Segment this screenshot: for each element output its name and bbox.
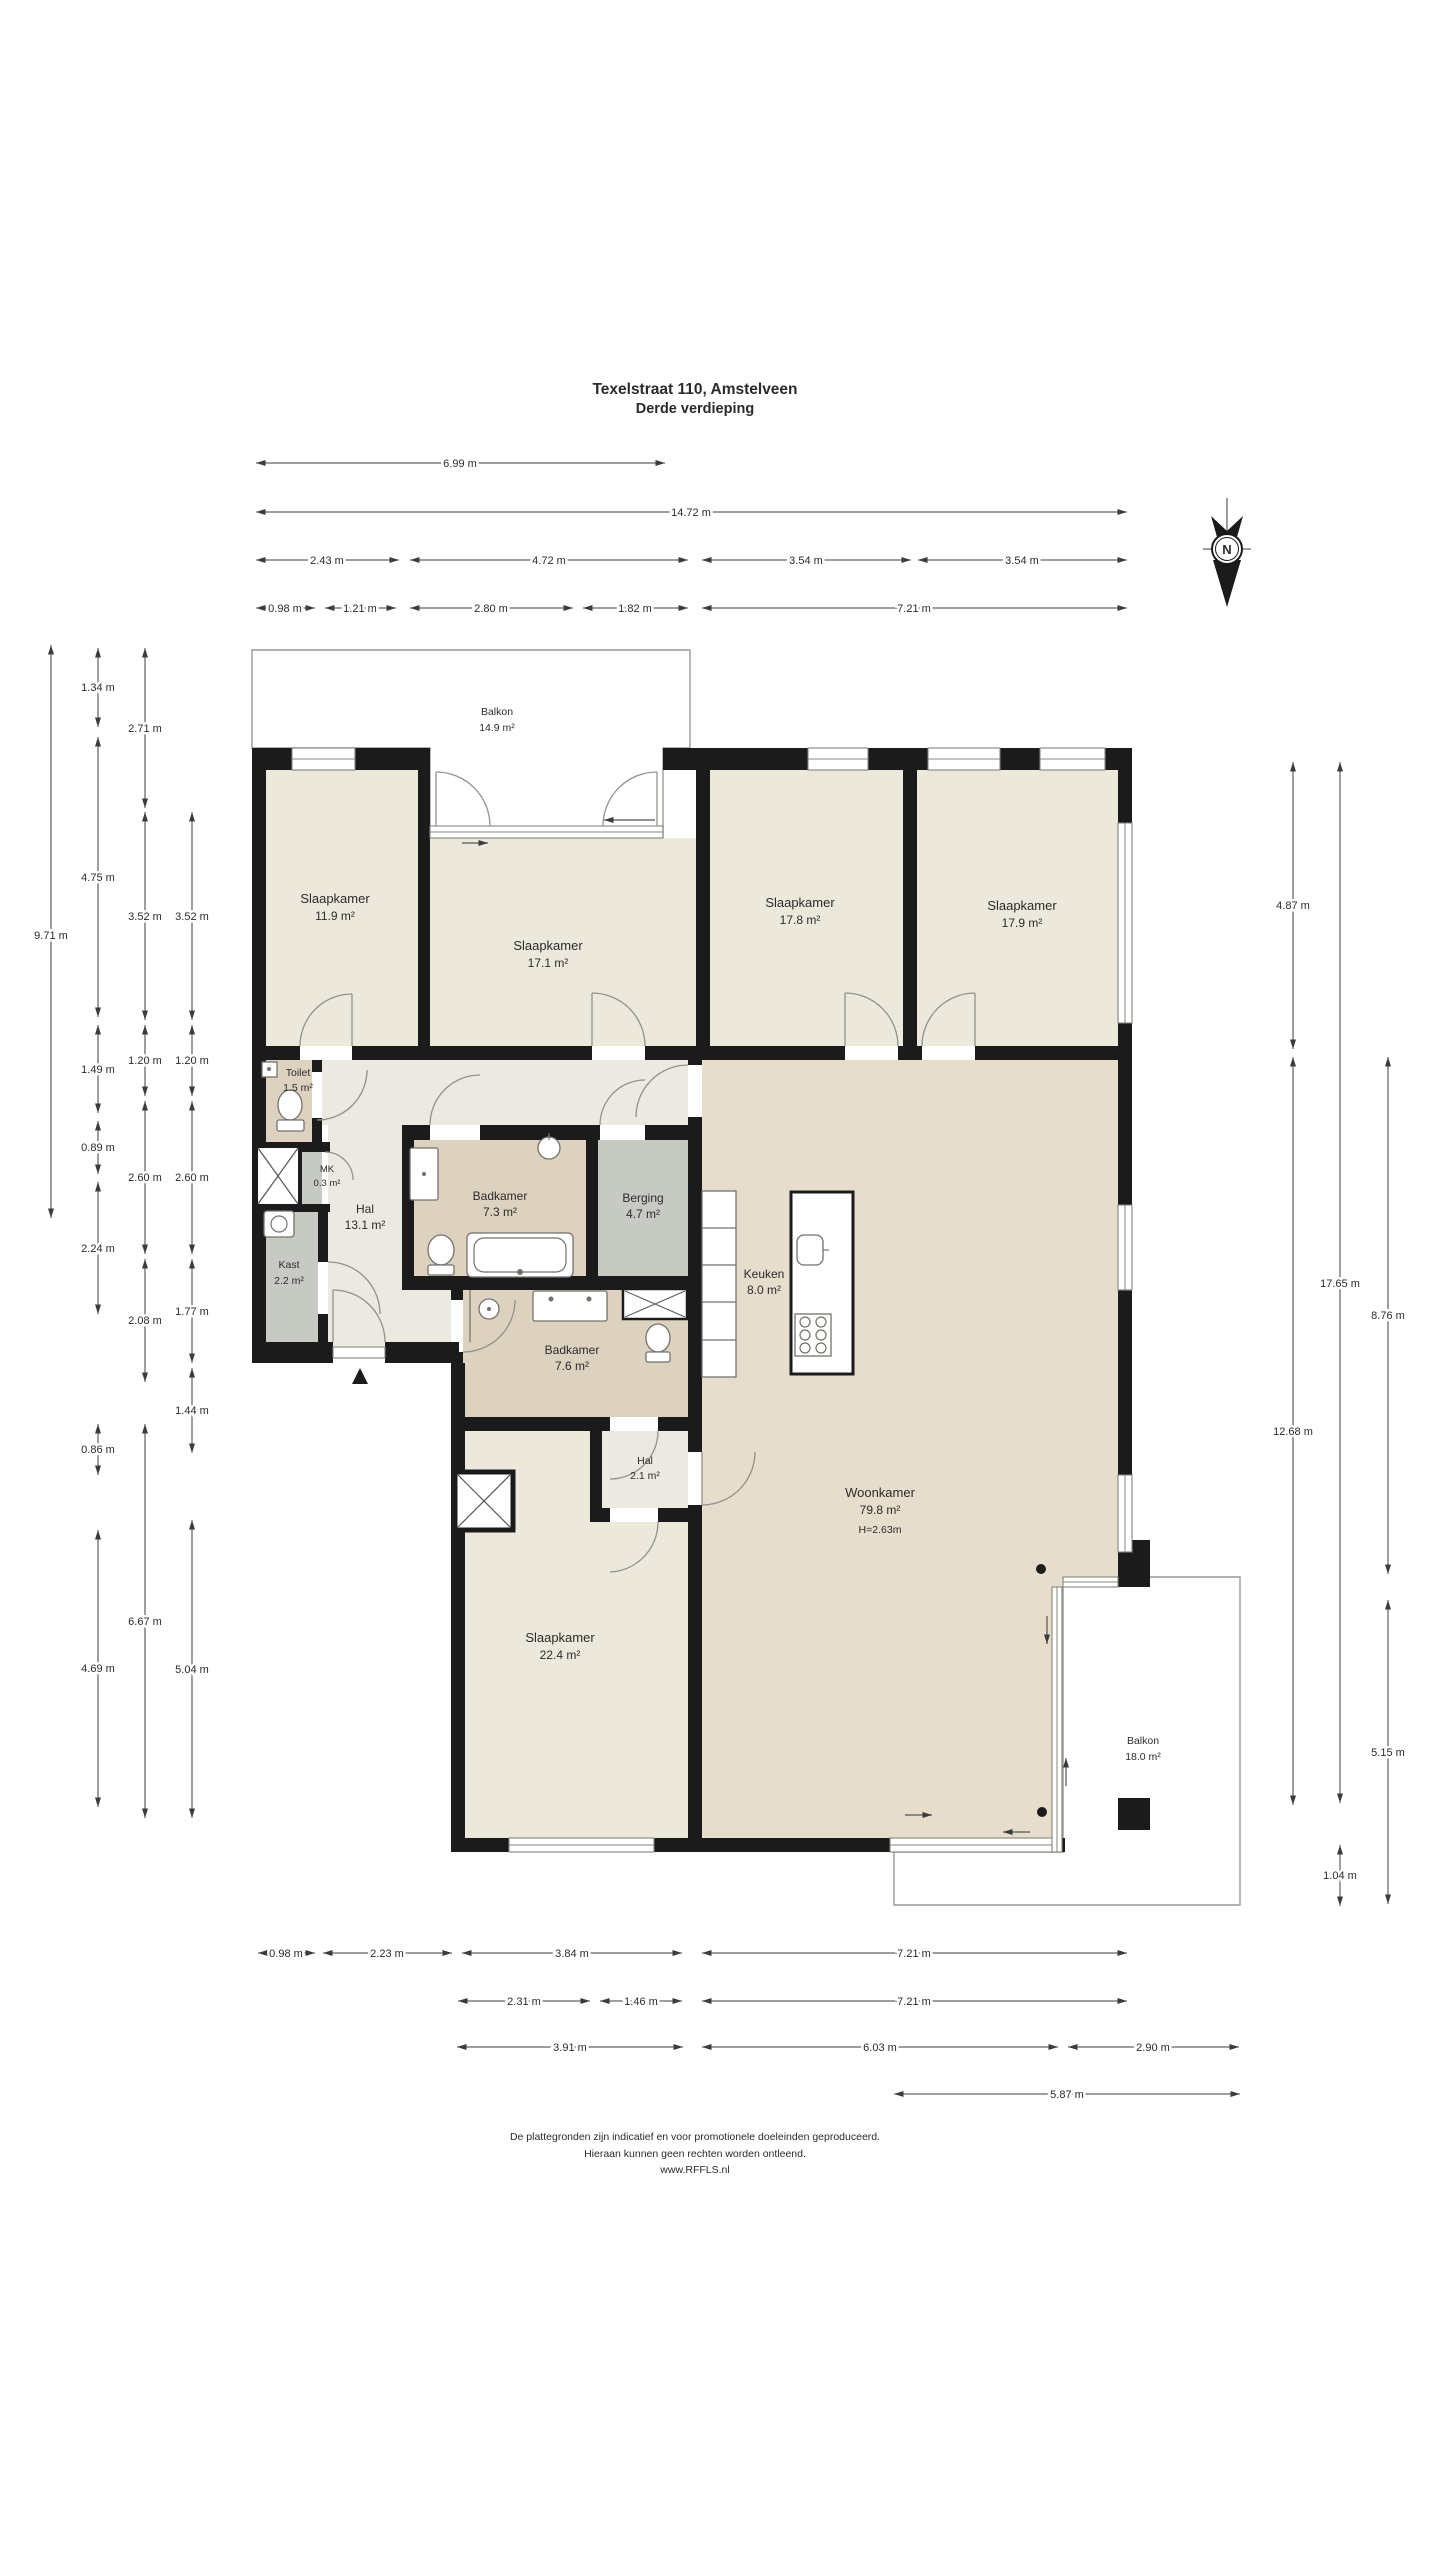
dim-label: 4.72 m bbox=[532, 555, 566, 567]
dimensions-bottom: 0.98 m 2.23 m 3.84 m 7.21 m 2.31 m 1.46 … bbox=[258, 1948, 1240, 2101]
title-floor: Derde verdieping bbox=[636, 401, 754, 417]
svg-text:Badkamer: Badkamer bbox=[473, 1189, 528, 1203]
dim-label: 1.49 m bbox=[81, 1064, 115, 1076]
dim-label: 9.71 m bbox=[34, 930, 68, 942]
dim-label: 1.20 m bbox=[175, 1055, 209, 1067]
svg-text:2.1 m²: 2.1 m² bbox=[630, 1470, 660, 1482]
svg-text:8.0 m²: 8.0 m² bbox=[747, 1283, 781, 1297]
page-title: Texelstraat 110, Amstelveen Derde verdie… bbox=[592, 381, 797, 417]
dimensions-left: 9.71 m 1.34 m 4.75 m 1.49 m 0.89 m 2.24 … bbox=[34, 645, 209, 1818]
dim-label: 1.77 m bbox=[175, 1306, 209, 1318]
dim-label: 7.21 m bbox=[897, 603, 931, 615]
svg-text:2.2 m²: 2.2 m² bbox=[274, 1275, 304, 1287]
title-address: Texelstraat 110, Amstelveen bbox=[592, 381, 797, 398]
svg-text:Keuken: Keuken bbox=[744, 1267, 785, 1281]
room-label-balkon-bottom: Balkon 18.0 m² bbox=[1125, 1735, 1161, 1763]
dim-label: 3.54 m bbox=[1005, 555, 1039, 567]
svg-text:Slaapkamer: Slaapkamer bbox=[513, 938, 583, 953]
svg-text:18.0 m²: 18.0 m² bbox=[1125, 1751, 1161, 1763]
dim-label: 2.43 m bbox=[310, 555, 344, 567]
floorplan: Balkon 14.9 m² Slaapkamer 11.9 m² Slaapk… bbox=[252, 650, 1240, 1905]
dim-label: 12.68 m bbox=[1273, 1426, 1313, 1438]
dim-label: 7.21 m bbox=[897, 1996, 931, 2008]
compass-north-label: N bbox=[1222, 542, 1231, 557]
svg-text:Slaapkamer: Slaapkamer bbox=[300, 891, 370, 906]
svg-text:17.9 m²: 17.9 m² bbox=[1002, 916, 1043, 930]
dim-label: 2.60 m bbox=[128, 1172, 162, 1184]
dim-label: 1.04 m bbox=[1323, 1870, 1357, 1882]
shaft-icon bbox=[455, 1472, 513, 1530]
dim-label: 7.21 m bbox=[897, 1948, 931, 1960]
dim-label: 2.60 m bbox=[175, 1172, 209, 1184]
dim-label: 3.54 m bbox=[789, 555, 823, 567]
svg-text:17.1 m²: 17.1 m² bbox=[528, 956, 569, 970]
room-label-balkon-top: Balkon 14.9 m² bbox=[479, 706, 515, 734]
dim-label: 4.75 m bbox=[81, 872, 115, 884]
sink-icon bbox=[797, 1235, 823, 1265]
dim-label: 1.34 m bbox=[81, 682, 115, 694]
svg-text:79.8 m²: 79.8 m² bbox=[860, 1503, 901, 1517]
dim-label: 3.91 m bbox=[553, 2042, 587, 2054]
dim-label: 2.31 m bbox=[507, 1996, 541, 2008]
floorplan-canvas: Texelstraat 110, Amstelveen Derde verdie… bbox=[0, 0, 1440, 2560]
dim-label: 3.52 m bbox=[175, 911, 209, 923]
dim-label: 4.87 m bbox=[1276, 900, 1310, 912]
svg-text:H=2.63m: H=2.63m bbox=[859, 1524, 902, 1536]
svg-text:Slaapkamer: Slaapkamer bbox=[987, 898, 1057, 913]
dim-label: 0.98 m bbox=[268, 603, 302, 615]
footer-line-2: Hieraan kunnen geen rechten worden ontle… bbox=[584, 2148, 806, 2160]
dim-label: 5.87 m bbox=[1050, 2089, 1084, 2101]
svg-text:17.8 m²: 17.8 m² bbox=[780, 913, 821, 927]
dim-label: 14.72 m bbox=[671, 507, 711, 519]
dim-label: 2.80 m bbox=[474, 603, 508, 615]
elevator-shaft-icon bbox=[256, 1146, 300, 1206]
svg-text:Berging: Berging bbox=[622, 1191, 663, 1205]
dim-label: 1.82 m bbox=[618, 603, 652, 615]
svg-text:Hal: Hal bbox=[637, 1455, 653, 1467]
dim-label: 4.69 m bbox=[81, 1663, 115, 1675]
footer-line-1: De plattegronden zijn indicatief en voor… bbox=[510, 2131, 880, 2143]
dim-label: 2.90 m bbox=[1136, 2042, 1170, 2054]
svg-text:11.9 m²: 11.9 m² bbox=[315, 909, 355, 923]
dim-label: 1.46 m bbox=[624, 1996, 658, 2008]
svg-text:Balkon: Balkon bbox=[481, 706, 513, 718]
dimensions-top: 6.99 m 14.72 m 2.43 m 4.72 m 3.54 m 3.54… bbox=[256, 458, 1127, 615]
boiler-icon bbox=[264, 1211, 294, 1237]
dim-label: 0.86 m bbox=[81, 1444, 115, 1456]
footer-line-3: www.RFFLS.nl bbox=[659, 2164, 729, 2176]
footer-disclaimer: De plattegronden zijn indicatief en voor… bbox=[510, 2131, 880, 2176]
compass-icon: N bbox=[1203, 498, 1251, 607]
svg-text:22.4 m²: 22.4 m² bbox=[540, 1648, 581, 1662]
svg-text:Kast: Kast bbox=[278, 1259, 299, 1271]
svg-text:4.7 m²: 4.7 m² bbox=[626, 1207, 660, 1221]
svg-text:7.3 m²: 7.3 m² bbox=[483, 1205, 517, 1219]
stove-icon bbox=[795, 1314, 831, 1356]
svg-text:13.1 m²: 13.1 m² bbox=[345, 1218, 386, 1232]
svg-text:Woonkamer: Woonkamer bbox=[845, 1485, 916, 1500]
dim-label: 2.23 m bbox=[370, 1948, 404, 1960]
dimensions-right: 4.87 m 12.68 m 17.65 m 1.04 m 8.76 m 5.1… bbox=[1273, 762, 1405, 1906]
dim-label: 17.65 m bbox=[1320, 1278, 1360, 1290]
dim-label: 3.52 m bbox=[128, 911, 162, 923]
svg-text:Toilet: Toilet bbox=[286, 1067, 311, 1079]
svg-text:1.5 m²: 1.5 m² bbox=[283, 1082, 313, 1094]
dim-label: 8.76 m bbox=[1371, 1310, 1405, 1322]
svg-text:14.9 m²: 14.9 m² bbox=[479, 722, 515, 734]
vent-shaft-icon bbox=[623, 1289, 687, 1319]
svg-text:Balkon: Balkon bbox=[1127, 1735, 1159, 1747]
svg-text:Slaapkamer: Slaapkamer bbox=[525, 1630, 595, 1645]
dim-label: 1.21 m bbox=[343, 603, 377, 615]
dim-label: 2.24 m bbox=[81, 1243, 115, 1255]
dim-label: 3.84 m bbox=[555, 1948, 589, 1960]
dim-label: 0.98 m bbox=[269, 1948, 303, 1960]
dim-label: 2.08 m bbox=[128, 1315, 162, 1327]
dim-label: 2.71 m bbox=[128, 723, 162, 735]
dim-label: 5.15 m bbox=[1371, 1747, 1405, 1759]
dim-label: 1.44 m bbox=[175, 1405, 209, 1417]
dim-label: 6.67 m bbox=[128, 1616, 162, 1628]
svg-text:MK: MK bbox=[320, 1164, 335, 1175]
svg-text:0.3 m²: 0.3 m² bbox=[314, 1178, 341, 1189]
dim-label: 6.99 m bbox=[443, 458, 477, 470]
dim-label: 1.20 m bbox=[128, 1055, 162, 1067]
svg-text:Badkamer: Badkamer bbox=[545, 1343, 600, 1357]
dim-label: 6.03 m bbox=[863, 2042, 897, 2054]
entrance-arrow-icon bbox=[352, 1368, 368, 1384]
svg-text:Hal: Hal bbox=[356, 1202, 374, 1216]
floorplan-page: Texelstraat 110, Amstelveen Derde verdie… bbox=[0, 0, 1440, 2560]
svg-text:Slaapkamer: Slaapkamer bbox=[765, 895, 835, 910]
dim-label: 0.89 m bbox=[81, 1142, 115, 1154]
svg-text:7.6 m²: 7.6 m² bbox=[555, 1359, 589, 1373]
dim-label: 5.04 m bbox=[175, 1664, 209, 1676]
